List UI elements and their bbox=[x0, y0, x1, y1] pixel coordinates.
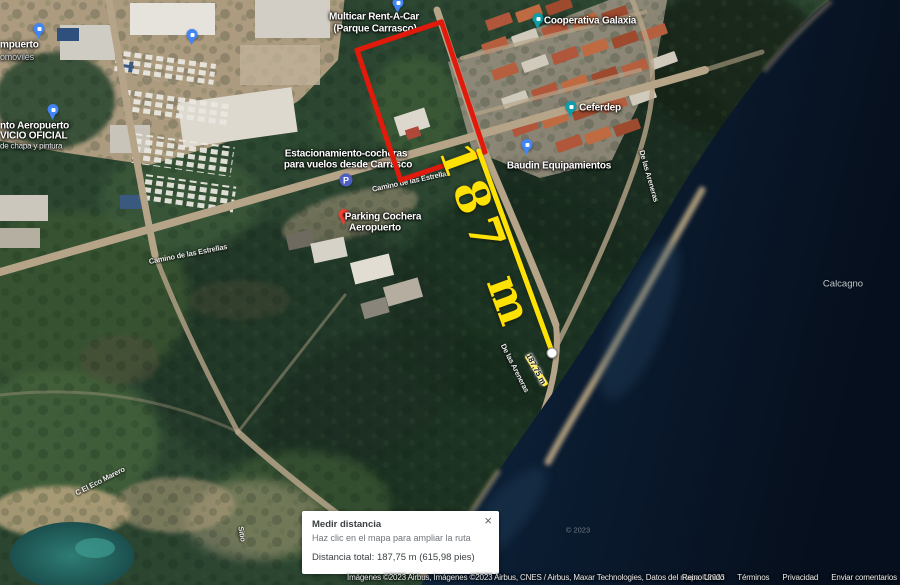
attribution-link-privacy[interactable]: Privacidad bbox=[782, 573, 818, 582]
measure-endpoint-handle[interactable] bbox=[547, 348, 558, 359]
poi-pin-airport[interactable] bbox=[34, 23, 45, 34]
poi-label-cooperativa[interactable]: Cooperativa Galaxia bbox=[544, 16, 636, 27]
attribution-link-terms[interactable]: Términos bbox=[737, 573, 769, 582]
poi-pin-cooperativa[interactable] bbox=[533, 13, 544, 24]
google-maps-satellite-view: P Multicar Rent-A-Car (Parque Carrasco) … bbox=[0, 0, 900, 585]
poi-pin-ceferdep[interactable] bbox=[566, 101, 577, 112]
poi-label-parking-2[interactable]: Aeropuerto bbox=[349, 223, 401, 234]
poi-label-parking-1[interactable]: Parking Cochera bbox=[345, 212, 421, 223]
close-icon[interactable]: × bbox=[484, 514, 492, 527]
poi-pin-airport-2[interactable] bbox=[187, 29, 198, 40]
poi-label-servicio-2[interactable]: VICIO OFICIAL bbox=[0, 131, 67, 142]
attribution-link-feedback[interactable]: Enviar comentarios bbox=[831, 573, 897, 582]
imagery-watermark: © 2023 bbox=[566, 526, 590, 535]
poi-label-multicar-1[interactable]: Multicar Rent-A-Car bbox=[329, 12, 419, 23]
popup-subtitle: Haz clic en el mapa para ampliar la ruta bbox=[312, 533, 489, 543]
poi-label-airport-2: omóviles bbox=[0, 52, 34, 62]
attribution-links: Reino Unido Términos Privacidad Enviar c… bbox=[682, 573, 897, 582]
popup-total-distance: Distancia total: 187,75 m (615,98 pies) bbox=[312, 552, 489, 563]
popup-title: Medir distancia bbox=[312, 519, 489, 530]
poi-pin-servicio[interactable] bbox=[48, 104, 59, 115]
poi-label-ceferdep[interactable]: Ceferdep bbox=[579, 103, 621, 114]
poi-pin-baudin[interactable] bbox=[522, 139, 533, 150]
poi-label-servicio-3: de chapa y pintura bbox=[0, 142, 62, 151]
parking-icon[interactable]: P bbox=[340, 174, 353, 187]
area-label-calcagno: Calcagno bbox=[823, 279, 863, 290]
measure-distance-popup: × Medir distancia Haz clic en el mapa pa… bbox=[302, 511, 499, 574]
attribution-imagery: Imágenes ©2023 Airbus, Imágenes ©2023 Ai… bbox=[347, 573, 725, 582]
poi-label-baudin[interactable]: Baudin Equipamientos bbox=[507, 161, 611, 172]
attribution-link-region[interactable]: Reino Unido bbox=[682, 573, 724, 582]
poi-label-airport-1[interactable]: mpuerto bbox=[0, 40, 39, 51]
